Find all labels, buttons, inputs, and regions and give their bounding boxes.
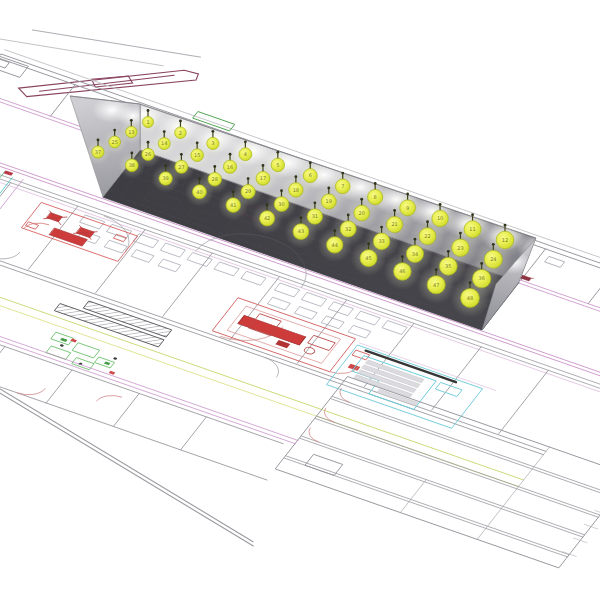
luminaire-number: 16 <box>227 164 233 170</box>
luminaire-cap <box>247 177 250 180</box>
luminaire-cap <box>360 198 363 201</box>
luminaire-number: 19 <box>326 198 332 204</box>
luminaire[interactable]: 46 <box>384 253 421 290</box>
luminaire-cap <box>347 214 350 217</box>
luminaire-number: 46 <box>399 268 405 274</box>
luminaire-number: 25 <box>111 139 117 145</box>
luminaire-cap <box>374 182 377 185</box>
luminaire[interactable]: 42 <box>251 202 283 234</box>
luminaire-cap <box>471 213 474 216</box>
luminaire-number: 9 <box>406 205 409 211</box>
luminaire-cap <box>300 216 303 219</box>
luminaire-cap <box>435 268 438 271</box>
luminaire-cap <box>341 172 344 175</box>
luminaire-cap <box>309 161 312 164</box>
luminaire[interactable]: 44 <box>318 228 352 262</box>
luminaire-cap <box>97 139 100 142</box>
luminaire-number: 45 <box>365 255 371 261</box>
luminaire-number: 37 <box>95 149 101 155</box>
luminaire[interactable]: 40 <box>185 177 214 206</box>
luminaire[interactable]: 48 <box>450 278 489 317</box>
luminaire-cap <box>426 220 429 223</box>
luminaire-number: 22 <box>424 233 430 239</box>
luminaire-cap <box>414 238 417 241</box>
luminaire-number: 40 <box>196 189 202 195</box>
luminaire-number: 4 <box>244 151 247 157</box>
luminaire-cap <box>213 165 216 168</box>
luminaire[interactable]: 39 <box>152 164 180 192</box>
luminaire-number: 47 <box>433 282 439 288</box>
luminaire-cap <box>294 175 297 178</box>
luminaire-cap <box>147 109 150 112</box>
luminaire-number: 24 <box>490 256 496 262</box>
luminaire[interactable]: 47 <box>417 266 455 304</box>
luminaire-number: 36 <box>478 275 484 281</box>
luminaire-number: 6 <box>309 172 312 178</box>
luminaire-cap <box>113 129 116 132</box>
luminaire-cap <box>393 209 396 212</box>
luminaire-cap <box>130 151 133 154</box>
luminaire-cap <box>244 140 247 143</box>
luminaire-cap <box>313 201 316 204</box>
luminaire-number: 41 <box>230 202 236 208</box>
luminaire-cap <box>447 250 450 253</box>
luminaire-number: 10 <box>437 215 443 221</box>
luminaire-number: 18 <box>293 187 299 193</box>
luminaire-number: 15 <box>194 152 200 158</box>
luminaire-number: 27 <box>178 164 184 170</box>
viewport-3d[interactable]: 1234567891011121314151617181920212223242… <box>0 0 600 600</box>
southeast-strip-rooms <box>276 377 600 571</box>
luminaire-cap <box>229 153 232 156</box>
luminaire[interactable]: 45 <box>351 240 387 276</box>
luminaire-cap <box>276 151 279 154</box>
luminaire-number: 2 <box>179 130 182 136</box>
luminaire-cap <box>280 189 283 192</box>
luminaire-number: 8 <box>374 194 377 200</box>
luminaire-cap <box>179 120 182 123</box>
luminaire-cap <box>212 130 215 133</box>
luminaire-number: 7 <box>341 183 344 189</box>
luminaire-cap <box>469 281 472 284</box>
luminaire-cap <box>266 203 269 206</box>
luminaire-cap <box>262 164 265 167</box>
scene-canvas[interactable]: 1234567891011121314151617181920212223242… <box>0 0 600 600</box>
luminaire-cap <box>164 164 167 167</box>
luminaire-number: 26 <box>145 151 151 157</box>
luminaire-number: 14 <box>161 140 167 146</box>
luminaire-number: 34 <box>412 251 418 257</box>
luminaire-cap <box>480 262 483 265</box>
luminaire-number: 29 <box>245 188 251 194</box>
luminaire-cap <box>401 255 404 258</box>
luminaire-number: 39 <box>162 175 168 181</box>
luminaire-number: 1 <box>146 119 149 125</box>
luminaire-number: 32 <box>345 226 351 232</box>
luminaire-cap <box>196 141 199 144</box>
luminaire-cap <box>504 224 507 227</box>
luminaire-cap <box>367 242 370 245</box>
luminaire-number: 17 <box>260 175 266 181</box>
luminaire-cap <box>333 229 336 232</box>
luminaire[interactable]: 43 <box>284 215 317 248</box>
luminaire-number: 38 <box>129 162 135 168</box>
luminaire-number: 33 <box>378 238 384 244</box>
luminaire[interactable]: 41 <box>218 190 249 221</box>
luminaire-cap <box>163 130 166 133</box>
luminaire-number: 35 <box>445 263 451 269</box>
luminaire-cap <box>147 141 150 144</box>
luminaire-number: 48 <box>467 295 473 301</box>
luminaire-cap <box>232 190 235 193</box>
luminaire-number: 31 <box>312 213 318 219</box>
luminaire-cap <box>492 243 495 246</box>
luminaire-cap <box>130 119 133 122</box>
luminaire-number: 44 <box>332 242 338 248</box>
luminaire-number: 21 <box>391 221 397 227</box>
luminaire-cap <box>380 226 383 229</box>
luminaire-number: 12 <box>502 237 508 243</box>
luminaire-number: 28 <box>212 176 218 182</box>
luminaire-number: 23 <box>457 245 463 251</box>
luminaire-number: 43 <box>298 228 304 234</box>
floor-plan-layer <box>0 0 600 600</box>
luminaire-cap <box>180 153 183 156</box>
luminaire-number: 11 <box>469 226 475 232</box>
luminaire-cap <box>439 203 442 206</box>
luminaire-number: 13 <box>128 129 134 135</box>
luminaire-cap <box>459 232 462 235</box>
luminaire-number: 3 <box>211 140 214 146</box>
luminaire-cap <box>406 193 409 196</box>
luminaire-number: 30 <box>278 201 284 207</box>
luminaire-cap <box>327 187 330 190</box>
luminaire-number: 20 <box>359 210 365 216</box>
luminaire-cap <box>198 177 201 180</box>
luminaire-number: 42 <box>264 215 270 221</box>
luminaire-number: 5 <box>276 162 279 168</box>
